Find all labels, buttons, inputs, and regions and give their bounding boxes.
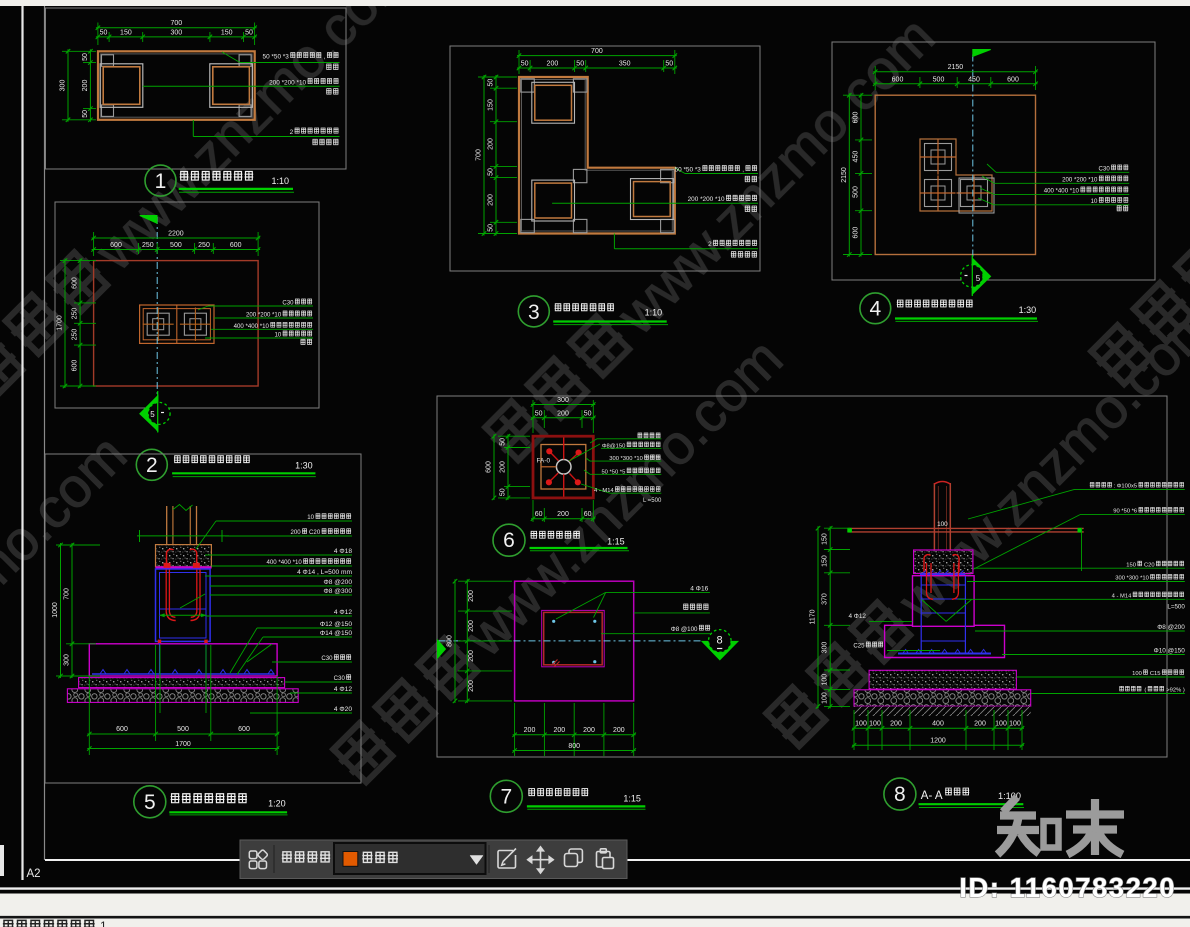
svg-text:800: 800 — [568, 743, 580, 750]
svg-text:10: 10 — [1091, 198, 1098, 205]
svg-text:500: 500 — [170, 242, 182, 249]
svg-text:A2: A2 — [27, 868, 41, 880]
svg-text:4 - M14: 4 - M14 — [1112, 593, 1132, 599]
svg-text:1: 1 — [100, 919, 107, 927]
svg-text:ID: 1160783220: ID: 1160783220 — [959, 872, 1176, 903]
svg-text:150: 150 — [120, 30, 132, 37]
svg-text:50 *50 *3: 50 *50 *3 — [263, 53, 290, 60]
svg-text:100: 100 — [1132, 671, 1142, 677]
svg-text:5: 5 — [144, 791, 156, 814]
svg-text:200 *200 *10: 200 *200 *10 — [246, 312, 282, 319]
svg-text:100: 100 — [869, 721, 881, 728]
svg-text:Φ12 @150: Φ12 @150 — [320, 621, 352, 628]
svg-text:250: 250 — [142, 242, 154, 249]
svg-text:600: 600 — [853, 112, 860, 124]
svg-text:600: 600 — [853, 227, 860, 239]
svg-text:600: 600 — [72, 277, 79, 289]
svg-text:150: 150 — [822, 533, 829, 545]
svg-text:800: 800 — [447, 635, 454, 647]
svg-text:200: 200 — [613, 727, 625, 734]
svg-text:5: 5 — [150, 410, 155, 419]
svg-text:50: 50 — [488, 168, 495, 176]
svg-text:1700: 1700 — [175, 741, 191, 748]
svg-text:200 *200 *10: 200 *200 *10 — [269, 79, 306, 86]
svg-text:250: 250 — [72, 329, 79, 341]
svg-text:>92% ): >92% ) — [1166, 688, 1185, 694]
svg-text:400 *400 *10: 400 *400 *10 — [234, 323, 270, 330]
svg-text:200: 200 — [468, 680, 475, 692]
svg-text:8: 8 — [716, 635, 722, 647]
svg-text:700: 700 — [170, 20, 182, 27]
svg-text:50 *50 *3: 50 *50 *3 — [675, 166, 702, 173]
svg-text:500: 500 — [177, 726, 189, 733]
svg-text:600: 600 — [110, 242, 122, 249]
svg-text:700: 700 — [591, 48, 603, 55]
svg-text:4 Φ12: 4 Φ12 — [334, 609, 352, 616]
svg-text:4 Φ12: 4 Φ12 — [334, 686, 352, 693]
svg-text:1:10: 1:10 — [645, 308, 663, 318]
svg-text:,: , — [324, 53, 326, 60]
svg-text:50: 50 — [82, 110, 89, 118]
svg-text:C20: C20 — [1144, 562, 1155, 568]
svg-text:200: 200 — [291, 529, 302, 536]
svg-text:1:10: 1:10 — [271, 176, 289, 186]
svg-text:3: 3 — [528, 301, 540, 324]
svg-text:450: 450 — [853, 151, 860, 163]
svg-text:50: 50 — [584, 410, 592, 417]
svg-text:300: 300 — [557, 397, 569, 404]
svg-text:4 - M14: 4 - M14 — [594, 488, 614, 494]
svg-text:60: 60 — [584, 511, 592, 518]
svg-text:4 Φ14 , L=500 mm: 4 Φ14 , L=500 mm — [297, 569, 352, 576]
svg-text:250: 250 — [198, 242, 210, 249]
svg-text:C30: C30 — [334, 675, 346, 682]
svg-text:450: 450 — [968, 76, 980, 83]
svg-text:(: ( — [1144, 688, 1146, 694]
svg-text:200: 200 — [524, 727, 536, 734]
svg-text:Φ8 @200: Φ8 @200 — [1157, 624, 1185, 631]
svg-text:200: 200 — [468, 620, 475, 632]
svg-text:50: 50 — [488, 224, 495, 232]
svg-text:200: 200 — [557, 410, 569, 417]
svg-text:50: 50 — [82, 53, 89, 61]
svg-text:200: 200 — [974, 721, 986, 728]
svg-text:A- A: A- A — [921, 790, 943, 802]
svg-text:7: 7 — [500, 785, 512, 808]
svg-text:Φ8 @200: Φ8 @200 — [324, 579, 353, 586]
svg-text:200: 200 — [488, 138, 495, 150]
svg-text:300: 300 — [60, 80, 67, 92]
svg-text:Φ8 @300: Φ8 @300 — [324, 588, 353, 595]
svg-text:600: 600 — [892, 76, 904, 83]
svg-text:1170: 1170 — [810, 609, 817, 624]
svg-text:200: 200 — [547, 61, 559, 68]
svg-text:600: 600 — [238, 726, 250, 733]
svg-text:200: 200 — [82, 80, 89, 92]
svg-text:100: 100 — [937, 521, 948, 528]
svg-text:L =500: L =500 — [643, 498, 662, 504]
svg-text:10: 10 — [307, 514, 314, 521]
svg-text:L=500: L=500 — [1167, 604, 1185, 611]
svg-text:200: 200 — [468, 650, 475, 662]
svg-text:4 Φ18: 4 Φ18 — [334, 548, 352, 555]
svg-text:60: 60 — [535, 511, 543, 518]
svg-text:400 *400 *10: 400 *400 *10 — [1044, 188, 1080, 195]
svg-text:Φ14 @150: Φ14 @150 — [320, 630, 352, 637]
svg-text:90 *50 *6: 90 *50 *6 — [1113, 509, 1137, 515]
svg-text:C15: C15 — [1150, 671, 1161, 677]
svg-text:Φ10 @150: Φ10 @150 — [1154, 648, 1186, 655]
svg-text:4 Φ20: 4 Φ20 — [334, 706, 352, 713]
svg-text:200 *200 *10: 200 *200 *10 — [1062, 176, 1098, 183]
svg-text:1:30: 1:30 — [1019, 305, 1037, 315]
svg-text:500: 500 — [853, 186, 860, 198]
svg-text:350: 350 — [619, 61, 631, 68]
svg-text:100: 100 — [822, 674, 829, 686]
svg-text:C30: C30 — [282, 300, 294, 307]
svg-text:500: 500 — [933, 76, 945, 83]
svg-text:4 Φ16: 4 Φ16 — [690, 586, 708, 593]
svg-text:1:15: 1:15 — [607, 537, 625, 547]
svg-text:600: 600 — [116, 726, 128, 733]
svg-text:1: 1 — [155, 170, 167, 193]
svg-text:C30: C30 — [321, 655, 333, 662]
svg-text:C20: C20 — [309, 529, 321, 536]
svg-text:50: 50 — [500, 488, 507, 496]
svg-text:10: 10 — [274, 332, 281, 339]
svg-text:150: 150 — [822, 555, 829, 567]
svg-text:50: 50 — [521, 61, 529, 68]
svg-text:200: 200 — [488, 194, 495, 206]
svg-text:200: 200 — [468, 590, 475, 602]
svg-text:200: 200 — [553, 727, 565, 734]
svg-text:2200: 2200 — [168, 230, 184, 237]
svg-text:50: 50 — [245, 30, 253, 37]
svg-text:300: 300 — [822, 642, 829, 654]
svg-text:8: 8 — [894, 783, 906, 806]
svg-text:Φ8 @100: Φ8 @100 — [671, 626, 698, 633]
svg-text:300: 300 — [64, 654, 71, 666]
svg-text:2150: 2150 — [841, 167, 848, 183]
svg-text:600: 600 — [72, 360, 79, 372]
svg-text:C30: C30 — [1099, 165, 1111, 172]
svg-text:6: 6 — [503, 529, 515, 552]
svg-text:700: 700 — [476, 149, 483, 161]
svg-text:C25: C25 — [853, 643, 865, 650]
svg-text:300 *300 *10: 300 *300 *10 — [1115, 576, 1149, 582]
svg-text:150: 150 — [488, 99, 495, 111]
svg-text:300 *300 *10: 300 *300 *10 — [609, 456, 643, 462]
svg-text:2: 2 — [146, 454, 158, 477]
svg-text:4: 4 — [869, 297, 881, 320]
svg-text:1:20: 1:20 — [268, 799, 286, 809]
svg-text:200: 200 — [557, 511, 569, 518]
svg-text:400: 400 — [932, 721, 944, 728]
svg-text:150: 150 — [1126, 562, 1136, 568]
svg-text:1:15: 1:15 — [623, 794, 641, 804]
svg-text:50: 50 — [576, 61, 584, 68]
svg-text:600: 600 — [230, 242, 242, 249]
svg-text:50 *50 *5: 50 *50 *5 — [601, 469, 625, 475]
svg-text:370: 370 — [822, 593, 829, 605]
svg-text:700: 700 — [64, 588, 71, 600]
svg-text:250: 250 — [72, 308, 79, 320]
svg-text:2: 2 — [708, 241, 712, 248]
svg-text:2150: 2150 — [948, 64, 964, 71]
svg-text:300: 300 — [170, 30, 182, 37]
svg-text:1700: 1700 — [57, 315, 64, 331]
svg-text:1000: 1000 — [52, 602, 59, 618]
svg-text:600: 600 — [486, 461, 493, 473]
svg-text:50: 50 — [100, 30, 108, 37]
svg-text:: Φ100x5: : Φ100x5 — [1114, 484, 1138, 490]
svg-text:FA-0: FA-0 — [537, 458, 551, 465]
svg-text:50: 50 — [500, 438, 507, 446]
svg-text:4 Φ12: 4 Φ12 — [848, 613, 866, 620]
svg-text:1:30: 1:30 — [295, 461, 313, 471]
svg-text:50: 50 — [488, 79, 495, 87]
svg-text:100: 100 — [822, 692, 829, 704]
svg-text:400 *400 *10: 400 *400 *10 — [267, 559, 303, 566]
svg-text:5: 5 — [976, 274, 981, 283]
svg-text:100: 100 — [1009, 721, 1021, 728]
svg-text:,: , — [742, 166, 744, 173]
svg-text:2: 2 — [290, 129, 294, 136]
svg-text:200: 200 — [890, 721, 902, 728]
svg-text:50: 50 — [535, 410, 543, 417]
svg-text:100: 100 — [995, 721, 1007, 728]
svg-text:50: 50 — [665, 61, 673, 68]
svg-text:100: 100 — [855, 721, 867, 728]
svg-text:200: 200 — [500, 461, 507, 473]
svg-text:Φ8@150: Φ8@150 — [602, 443, 625, 449]
svg-text:1200: 1200 — [930, 738, 946, 745]
svg-text:200: 200 — [583, 727, 595, 734]
svg-text:600: 600 — [1007, 76, 1019, 83]
svg-text:200 *200 *10: 200 *200 *10 — [688, 196, 725, 203]
svg-text:150: 150 — [221, 30, 233, 37]
